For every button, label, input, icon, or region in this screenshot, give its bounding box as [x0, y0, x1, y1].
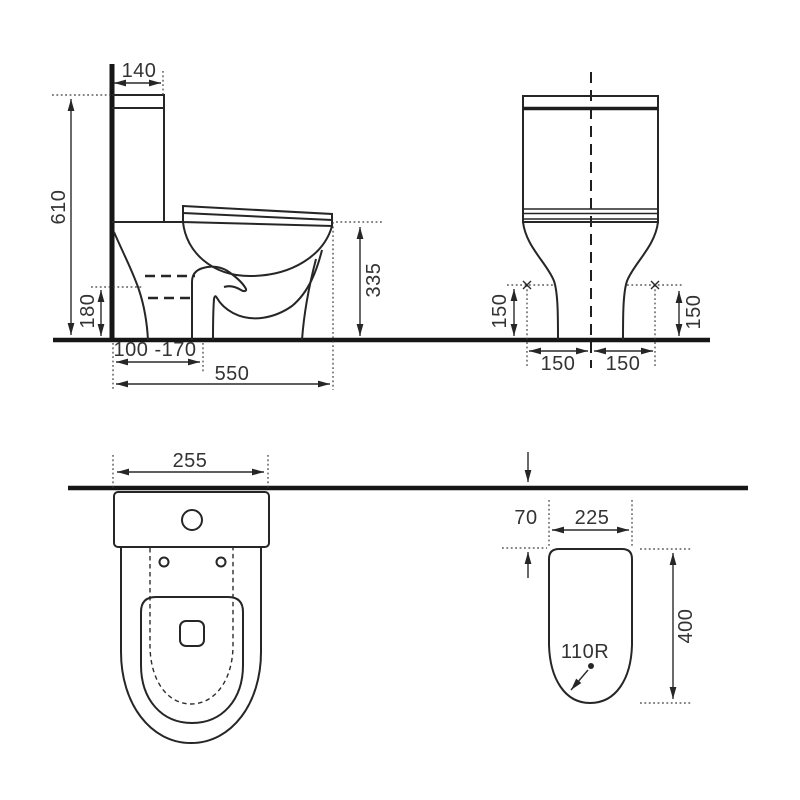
- body-right-edge: [623, 222, 658, 340]
- dim-label-610: 610: [48, 190, 70, 225]
- dim-label-150-left-width: 150: [541, 353, 576, 375]
- dim-label-180: 180: [77, 294, 99, 329]
- seat-hinge-right: [217, 558, 226, 567]
- drain-opening: [180, 621, 204, 646]
- toilet-dimension-drawing: 140 610 180 335 100 -170 550 150 150 150…: [0, 0, 800, 800]
- hidden-rim-dashed: [150, 548, 233, 704]
- plan-view: 255: [68, 450, 748, 743]
- trapway-sweep-curve: [213, 250, 322, 340]
- pedestal-front-edge: [302, 259, 316, 340]
- dim-label-335: 335: [363, 263, 385, 298]
- dim-label-400: 400: [675, 609, 697, 644]
- seat-hinge-left: [160, 558, 169, 567]
- radius-arrow: [571, 670, 588, 690]
- dim-label-225: 225: [575, 507, 610, 529]
- radius-center-dot: [588, 663, 594, 669]
- pedestal-back-edge: [114, 232, 148, 340]
- dim-label-100-170: 100 -170: [114, 339, 197, 361]
- dim-label-150-left-height: 150: [489, 294, 511, 329]
- tank-outline-plan: [114, 492, 269, 547]
- dim-label-255: 255: [173, 450, 208, 472]
- tank-outline-side: [112, 95, 183, 222]
- front-view: 150 150 150 150: [489, 72, 705, 375]
- dim-label-150-right-width: 150: [606, 353, 641, 375]
- seat-lid-side: [183, 206, 332, 226]
- footprint-outline: [549, 549, 632, 703]
- trapway-weir-curve: [192, 267, 246, 340]
- technical-drawing-canvas: 140 610 180 335 100 -170 550 150 150 150…: [0, 0, 800, 800]
- flush-button: [182, 510, 202, 530]
- dim-label-70: 70: [514, 507, 537, 529]
- dim-label-550: 550: [215, 363, 250, 385]
- dim-label-110R: 110R: [561, 641, 609, 663]
- dim-label-150-right-height: 150: [683, 295, 705, 330]
- front-reference-dotted-lines: [507, 285, 684, 368]
- body-left-edge: [523, 222, 558, 340]
- hidden-outlet-lines: [145, 276, 195, 298]
- dim-label-140: 140: [122, 60, 157, 82]
